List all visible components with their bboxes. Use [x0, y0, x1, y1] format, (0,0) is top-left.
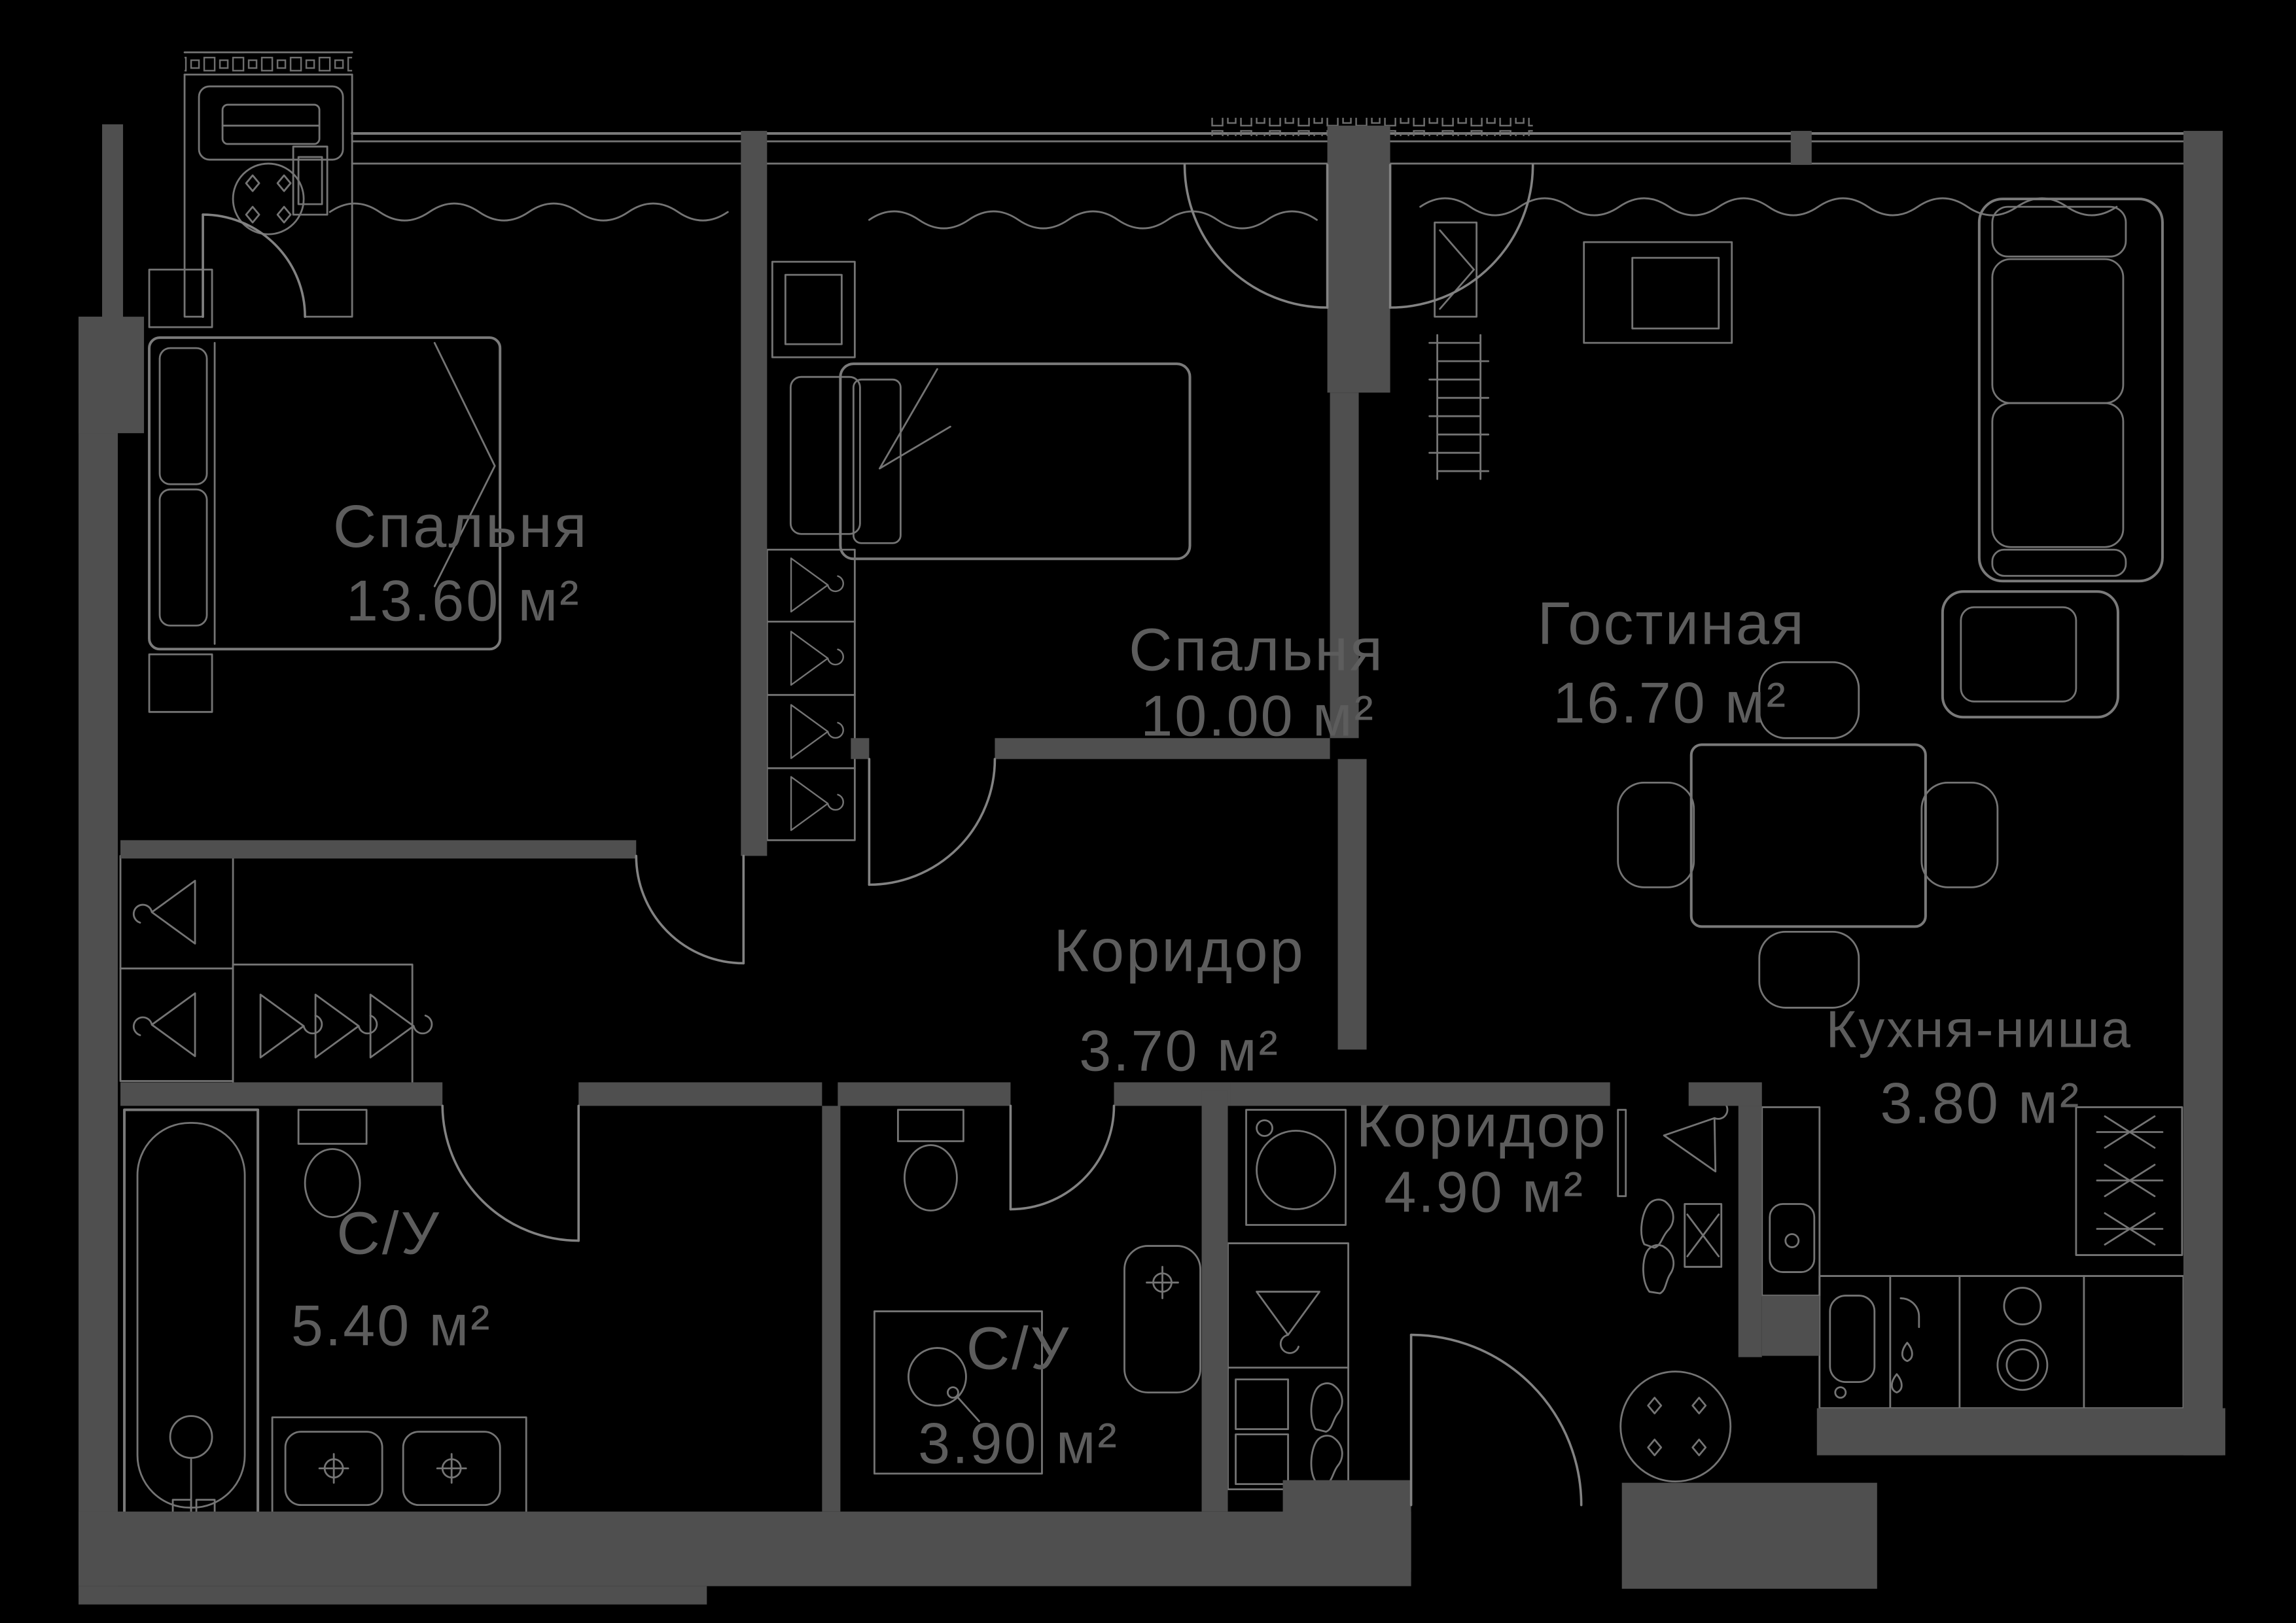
- chair-icon: [1759, 932, 1859, 1007]
- hall-closet-icon: [1228, 1244, 1349, 1490]
- washbasin-icon: [1124, 1246, 1200, 1393]
- kitchen-counter-left-icon: [1762, 1107, 1820, 1295]
- balcony-door-bedroom-2: [1185, 165, 1328, 307]
- desk-icon: [772, 262, 855, 357]
- armchair-icon: [1943, 591, 2118, 717]
- tv-stand-icon: [1584, 242, 1732, 343]
- chair-icon: [1922, 782, 1998, 887]
- closet-hangers-icon: [767, 550, 855, 840]
- ladder-rack-icon: [1430, 335, 1489, 479]
- bathroom-1-door: [442, 1106, 578, 1240]
- room-label-bathroom-2-name: С/У: [966, 1315, 1070, 1382]
- room-label-corridor-2-name: Коридор: [1356, 1092, 1607, 1159]
- floor-plan-page: Спальня 13.60 м² Спальня 10.00 м² Гостин…: [0, 0, 2296, 1623]
- dresser-icon: [293, 147, 327, 215]
- balcony-bench-icon: [199, 86, 343, 160]
- chair-icon: [1618, 782, 1694, 887]
- room-label-living-area: 16.70 м²: [1553, 670, 1788, 735]
- curtain-wave-bedroom-2: [869, 211, 1316, 228]
- toilet-icon: [898, 1109, 963, 1210]
- walls: [79, 124, 2225, 1605]
- dining-table-icon: [1691, 744, 1926, 926]
- storage-box-icon: [1685, 1204, 1722, 1267]
- faucet-icon: [1901, 1299, 1919, 1327]
- single-bed-icon: [840, 364, 1190, 559]
- curtain-wave-bedroom-1: [330, 203, 728, 220]
- round-table-icon: [1621, 1372, 1731, 1482]
- room-label-bathroom-1-area: 5.40 м²: [291, 1293, 492, 1358]
- room-label-bathroom-1-name: С/У: [336, 1200, 440, 1267]
- nightstand-icon: [790, 377, 860, 534]
- room-label-corridor-1-area: 3.70 м²: [1079, 1018, 1280, 1083]
- room-label-bathroom-2-area: 3.90 м²: [918, 1411, 1119, 1476]
- balcony-door-living: [1390, 165, 1533, 307]
- mirror-icon: [1618, 1109, 1626, 1196]
- wardrobe-left-icon: [120, 856, 432, 1089]
- entrance-door: [1411, 1335, 1581, 1505]
- bathroom-2-door: [1010, 1106, 1114, 1209]
- room-label-bedroom-1-area: 13.60 м²: [346, 568, 581, 633]
- window-band: [185, 52, 2183, 317]
- room-label-corridor-2-area: 4.90 м²: [1384, 1160, 1585, 1225]
- nightstand-icon: [149, 654, 212, 712]
- washing-machine-icon: [1246, 1109, 1346, 1225]
- room-label-kitchen-area: 3.80 м²: [1881, 1070, 2081, 1135]
- room-label-bedroom-2-name: Спальня: [1129, 616, 1385, 683]
- floor-plan-canvas: Спальня 13.60 м² Спальня 10.00 м² Гостин…: [0, 0, 2296, 1623]
- sink-basin-icon: [1830, 1296, 1875, 1382]
- entry-closet-icon: [1618, 1085, 1751, 1295]
- room-label-living-name: Гостиная: [1538, 589, 1806, 657]
- bedroom-2-door: [869, 759, 995, 884]
- bathtub-icon: [124, 1109, 258, 1520]
- balcony-door: [203, 215, 305, 317]
- sofa-icon: [1979, 199, 2163, 581]
- room-label-corridor-1-name: Коридор: [1053, 916, 1305, 984]
- fridge-icon: [2076, 1107, 2182, 1255]
- kitchen-sink-icon: [1770, 1204, 1814, 1272]
- bedroom-1-door: [636, 856, 743, 963]
- kitchen-counter-bottom-icon: [1820, 1276, 2183, 1408]
- room-label-bedroom-1-name: Спальня: [333, 493, 589, 560]
- room-label-kitchen-name: Кухня-ниша: [1826, 1000, 2132, 1058]
- hob-icon: [2004, 1288, 2041, 1325]
- room-label-bedroom-2-area: 10.00 м²: [1140, 683, 1375, 748]
- double-sink-icon: [272, 1418, 526, 1521]
- mirror-wardrobe-icon: [1435, 222, 1477, 317]
- oven-icon: [1998, 1340, 2047, 1390]
